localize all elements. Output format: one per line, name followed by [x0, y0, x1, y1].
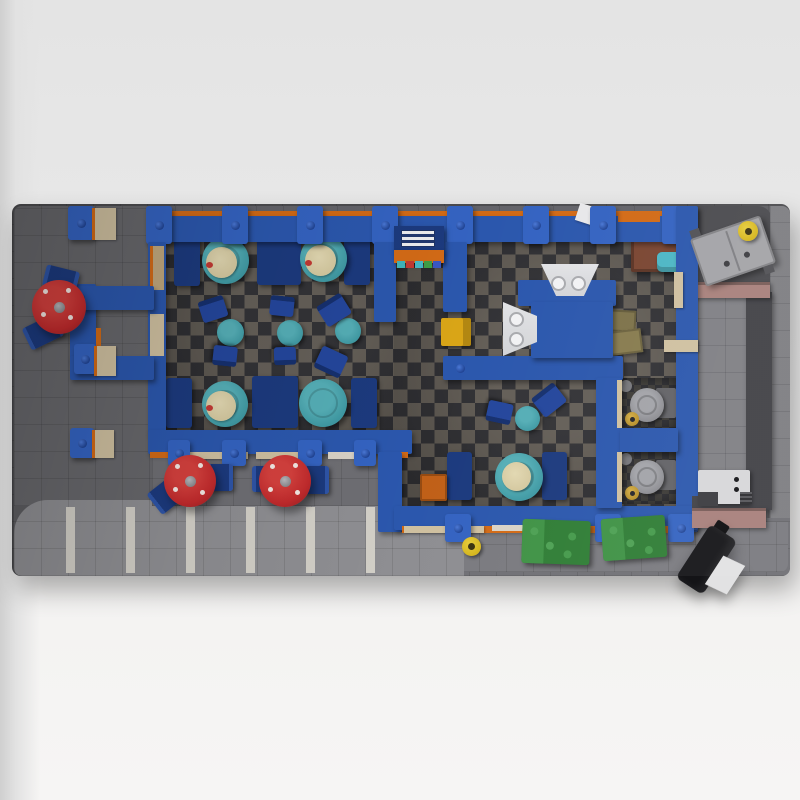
cafe-table	[515, 406, 540, 431]
ice-machine-grille	[740, 492, 752, 504]
cafe-table	[217, 319, 244, 346]
umbrella-hub	[54, 302, 65, 313]
facade-cap-block	[74, 344, 96, 374]
booth-bench	[174, 236, 200, 286]
pillar-stub	[222, 440, 246, 466]
olive-supply-box	[609, 328, 644, 356]
facade-cap-tan	[94, 346, 116, 376]
floor-drain	[625, 486, 639, 500]
sink-basin	[509, 332, 524, 347]
booth-bench	[542, 452, 567, 500]
facade-cap-block	[70, 428, 94, 458]
tan-partition	[664, 340, 698, 352]
counter-vent-grille	[401, 230, 435, 247]
parking-stripe	[306, 507, 315, 573]
facade-cap-tan	[92, 430, 114, 458]
fire-hydrant	[738, 221, 758, 241]
ice-machine-dot	[734, 487, 739, 492]
food-speck	[206, 405, 213, 411]
fire-hydrant	[462, 537, 481, 556]
wall-serving	[443, 242, 467, 312]
wall-mid-vertical	[374, 242, 396, 322]
facade-cap-tan	[92, 208, 116, 240]
parking-stripe	[66, 507, 75, 573]
booth-bench	[351, 378, 377, 428]
sink-island-body	[531, 302, 613, 358]
yellow-mop-box	[441, 318, 471, 346]
green-dumpster	[601, 515, 668, 561]
wall-stud	[456, 364, 465, 373]
wall-pillar	[590, 206, 616, 244]
awning-trim	[618, 214, 660, 222]
table-plate	[502, 462, 531, 491]
ice-machine-base	[698, 492, 718, 506]
sink-basin	[509, 312, 524, 327]
green-dumpster	[521, 519, 590, 565]
facade-cap-block	[68, 206, 94, 240]
dumpster-lid	[601, 518, 626, 561]
parking-stripe	[366, 507, 375, 573]
booth-bench	[447, 452, 472, 500]
wall-pillar	[146, 206, 172, 244]
wall-pillar	[222, 206, 248, 244]
food-speck	[305, 260, 312, 266]
ice-machine-dot	[734, 477, 739, 482]
stall-door-frame	[617, 452, 622, 502]
booth-bench	[344, 235, 370, 285]
window-sill	[404, 526, 484, 533]
wall-stall-divider	[620, 428, 678, 452]
cafe-table	[335, 318, 361, 344]
pillar-stub	[354, 440, 376, 466]
cafe-chair	[269, 295, 295, 317]
entrance-door	[150, 246, 164, 290]
umbrella-table	[259, 455, 311, 507]
west-window	[150, 314, 164, 356]
tan-partition	[674, 272, 683, 308]
umbrella-hub	[185, 476, 196, 487]
sink-basin	[551, 276, 566, 291]
floor-drain	[625, 412, 639, 426]
counter-cup	[406, 261, 414, 268]
orange-crate	[420, 474, 447, 501]
counter-cup	[397, 261, 405, 268]
parking-stripe	[126, 507, 135, 573]
sink-basin	[571, 276, 586, 291]
dumpster-lid	[521, 519, 545, 564]
umbrella-table	[164, 455, 216, 507]
counter-cup	[424, 261, 432, 268]
cafe-table	[277, 320, 303, 346]
booth-bench	[252, 376, 298, 428]
cafe-chair	[274, 347, 297, 366]
parking-stripe	[246, 507, 255, 573]
counter-cup	[433, 261, 441, 268]
counter-cup	[415, 261, 423, 268]
gray-dumpster-foot	[763, 264, 775, 275]
wall-pillar	[447, 206, 473, 244]
stall-door-frame	[617, 380, 622, 428]
parking-stripe	[186, 507, 195, 573]
wall-divider	[443, 356, 623, 380]
booth-table	[299, 379, 347, 427]
umbrella-hub	[280, 476, 291, 487]
umbrella-table	[32, 280, 86, 334]
wall-pillar	[523, 206, 549, 244]
wall-pillar	[297, 206, 323, 244]
cafe-chair	[212, 345, 238, 367]
booth-bench	[166, 378, 192, 428]
food-speck	[206, 262, 213, 268]
